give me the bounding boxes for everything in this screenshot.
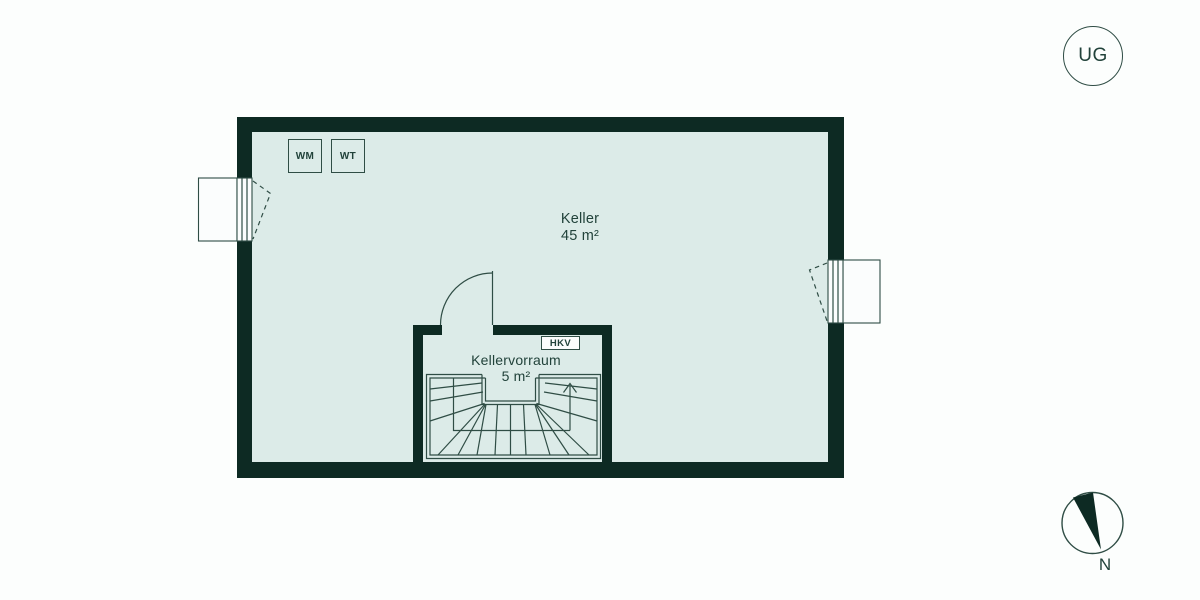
window-left-sill [199,178,238,241]
window-right-glazing [828,260,843,323]
dryer-box: WT [331,139,365,173]
compass [1062,493,1123,554]
keller-room-floor [252,132,828,462]
room-name: Keller [561,211,599,228]
room-area: 5 m² [471,368,561,384]
floor-badge-label: UG [1078,45,1108,67]
window-left-glazing [237,178,252,241]
window-right-sill [843,260,880,323]
compass-north-label: N [1099,555,1111,575]
room-area: 45 m² [561,228,599,245]
room-label-keller: Keller 45 m² [561,211,599,245]
floor-badge: UG [1063,26,1123,86]
room-name: Kellervorraum [471,352,561,368]
heating-distributor-label: HKV [550,338,571,349]
washing-machine-box: WM [288,139,322,173]
heating-distributor-box: HKV [541,336,580,350]
washing-machine-label: WM [296,151,315,162]
floorplan-drawing [0,0,1200,600]
dryer-label: WT [340,151,356,162]
room-label-kellervorraum: Kellervorraum 5 m² [471,352,561,384]
floorplan-page: UG N Keller 45 m² Kellervorraum 5 m² WM … [0,0,1200,600]
